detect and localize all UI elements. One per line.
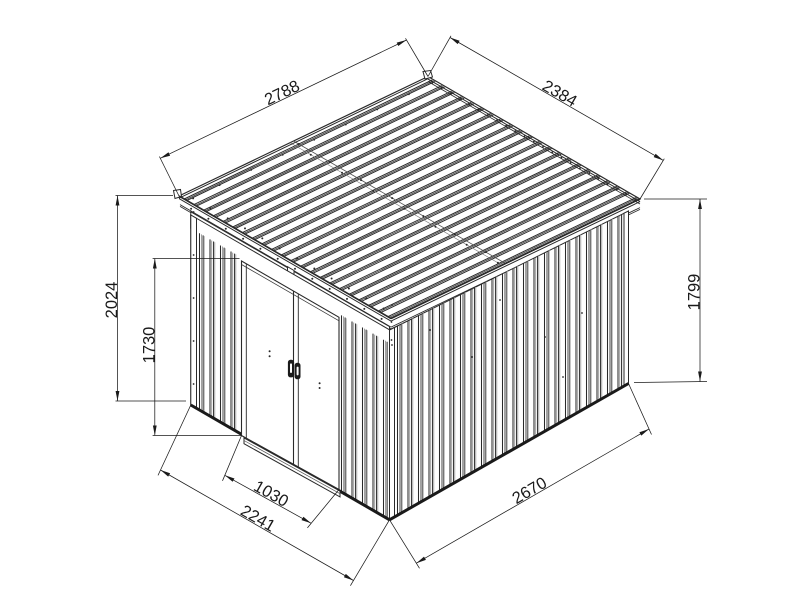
svg-text:2670: 2670: [509, 474, 550, 508]
svg-text:2241: 2241: [237, 502, 278, 536]
svg-text:2384: 2384: [539, 77, 580, 111]
svg-text:1730: 1730: [140, 327, 158, 364]
svg-text:2788: 2788: [262, 77, 303, 109]
svg-text:1799: 1799: [686, 274, 704, 311]
svg-text:2024: 2024: [103, 282, 121, 319]
svg-text:1030: 1030: [251, 477, 292, 511]
